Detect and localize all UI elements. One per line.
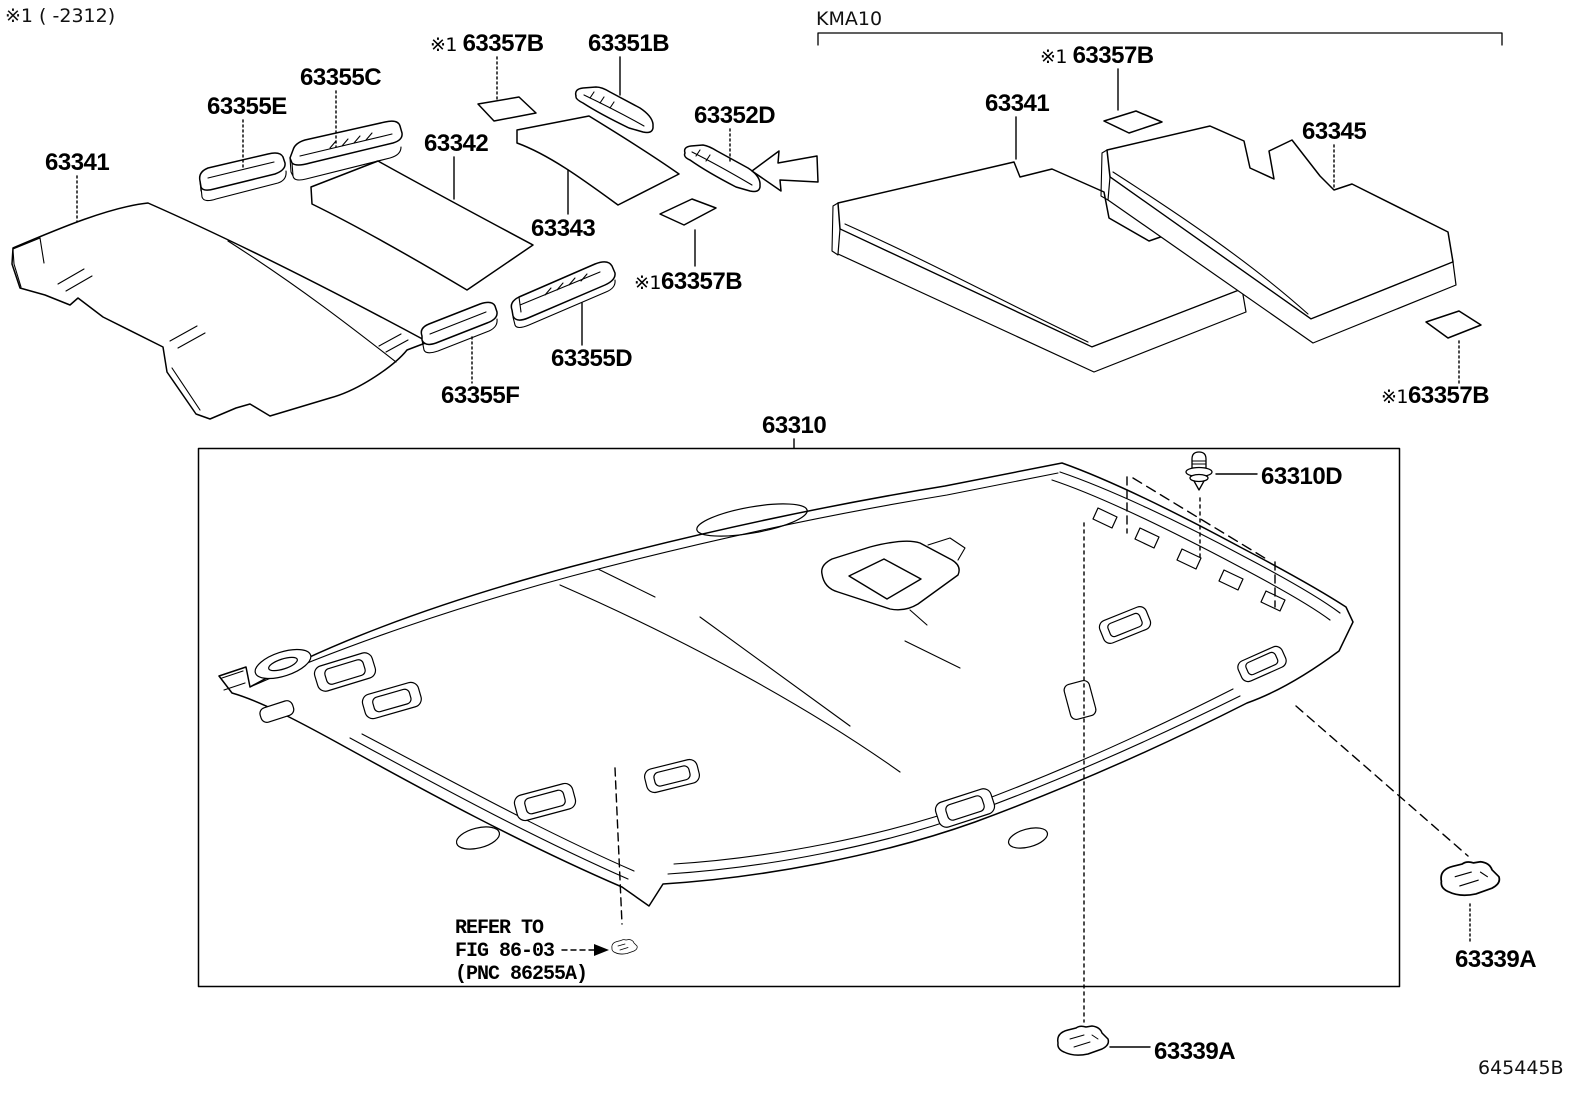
part-63342-drawing (311, 161, 533, 290)
part-label-63343[interactable]: 63343 (531, 215, 595, 242)
direction-arrow-icon (752, 151, 818, 191)
part-63355D-drawing (511, 262, 615, 328)
clip-63339A-right-icon (1441, 862, 1499, 895)
part-label-63355C[interactable]: 63355C (300, 64, 381, 91)
part-63352D-drawing (685, 145, 760, 192)
part-label-63355D[interactable]: 63355D (551, 345, 632, 372)
part-label-63310[interactable]: 63310 (762, 412, 826, 439)
part-63341-left-drawing (12, 203, 428, 419)
part-label-63341-left[interactable]: 63341 (45, 149, 109, 176)
diagram-canvas: ※1 ( -2312) KMA10 645445B REFER TO FIG 8… (0, 0, 1592, 1099)
patch-63357B-top-left (478, 97, 536, 121)
part-label-63357B-top-right[interactable]: ※1 63357B (1040, 42, 1154, 69)
roof-headlining-parts-diagram: ※1 ( -2312) KMA10 645445B REFER TO FIG 8… (0, 0, 1592, 1099)
part-63310-drawing (219, 463, 1353, 906)
part-label-63351B[interactable]: 63351B (588, 30, 669, 57)
kma10-bracket (818, 33, 1502, 45)
part-label-63339A-right[interactable]: 63339A (1455, 946, 1536, 973)
refer-note-line1: REFER TO (455, 917, 544, 940)
part-label-63342[interactable]: 63342 (424, 130, 488, 157)
group-code: KMA10 (816, 8, 882, 30)
part-63355F-drawing (421, 302, 497, 352)
clip-63310D-icon (1186, 452, 1212, 490)
refer-note-line3: (PNC 86255A) (455, 963, 587, 986)
part-label-63357B-right[interactable]: ※163357B (1381, 382, 1489, 409)
patch-63357B-top-right (1104, 111, 1162, 133)
refer-clip-icon (612, 940, 637, 955)
part-label-63310D[interactable]: 63310D (1261, 463, 1342, 490)
patch-63357B-mid-left (660, 199, 716, 225)
refer-note-line2: FIG 86-03 (455, 940, 554, 963)
part-label-63352D[interactable]: 63352D (694, 102, 775, 129)
part-label-63345[interactable]: 63345 (1302, 118, 1366, 145)
part-label-63357B-mid-left[interactable]: ※163357B (634, 268, 742, 295)
clip-63339A-bottom-icon (1058, 1026, 1109, 1055)
part-63343-drawing (517, 116, 679, 205)
variant-note: ※1 ( -2312) (5, 5, 115, 27)
part-label-63339A-bottom[interactable]: 63339A (1154, 1038, 1235, 1065)
part-label-63357B-top-left[interactable]: ※1 63357B (430, 30, 544, 57)
patch-63357B-right (1426, 311, 1481, 338)
part-label-63341-right[interactable]: 63341 (985, 90, 1049, 117)
part-label-63355E[interactable]: 63355E (207, 93, 287, 120)
figure-number: 645445B (1478, 1057, 1564, 1079)
part-label-63355F[interactable]: 63355F (441, 382, 519, 409)
refer-arrowhead-icon (594, 944, 609, 956)
